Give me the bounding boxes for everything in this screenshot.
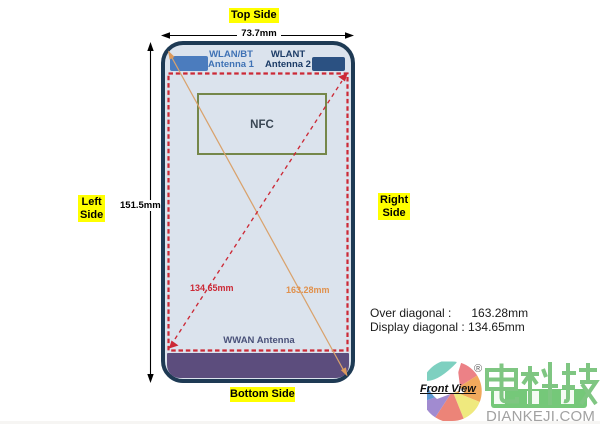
- svg-text:®: ®: [474, 363, 482, 375]
